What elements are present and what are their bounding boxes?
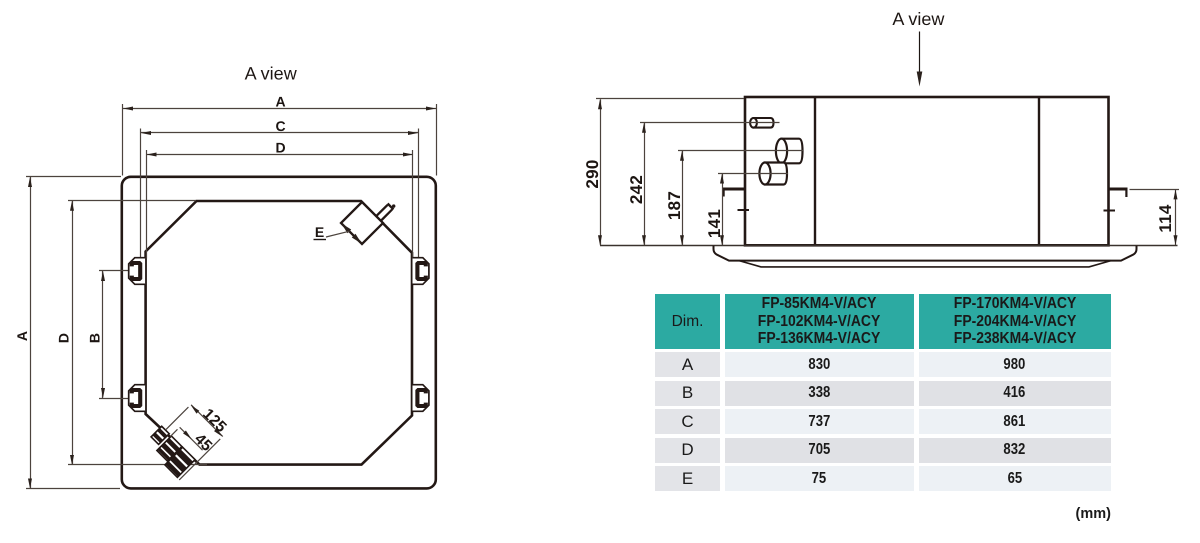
svg-text:C: C: [275, 118, 285, 134]
svg-text:D: D: [275, 140, 285, 156]
svg-text:A view: A view: [892, 9, 945, 29]
svg-text:187: 187: [665, 191, 684, 220]
svg-text:290: 290: [583, 159, 602, 188]
svg-text:A view: A view: [245, 63, 298, 83]
svg-text:B: B: [87, 333, 103, 343]
svg-text:A: A: [14, 331, 30, 341]
svg-text:114: 114: [1156, 204, 1175, 233]
svg-text:141: 141: [705, 209, 724, 238]
svg-text:D: D: [56, 333, 72, 343]
svg-text:E: E: [315, 224, 324, 240]
svg-text:242: 242: [627, 175, 646, 204]
svg-text:A: A: [275, 94, 285, 110]
